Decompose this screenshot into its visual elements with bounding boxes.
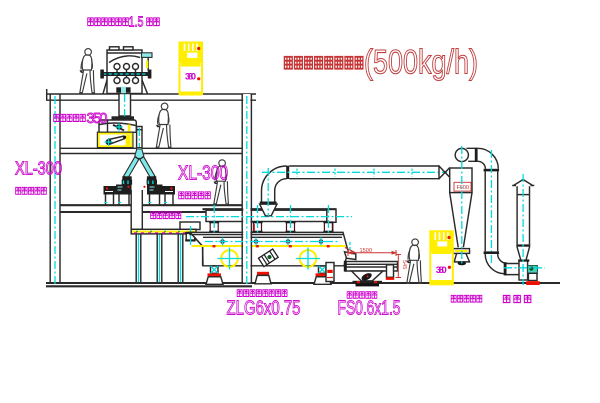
svg-text:1500: 1500 [360,248,372,254]
svg-text:380: 380 [185,72,196,83]
svg-text:FS0.6x1.5: FS0.6x1.5 [338,298,401,320]
svg-text:XL-300: XL-300 [15,159,62,179]
svg-text:380: 380 [436,265,447,276]
svg-text:(500kg/h): (500kg/h) [364,44,478,82]
svg-text:350: 350 [87,111,108,127]
svg-text:ZLG6x0.75: ZLG6x0.75 [227,298,301,320]
svg-text:545: 545 [401,260,407,269]
svg-text:1.5: 1.5 [129,14,144,31]
svg-text:XL-300: XL-300 [178,163,228,185]
svg-text:F600: F600 [457,185,470,191]
